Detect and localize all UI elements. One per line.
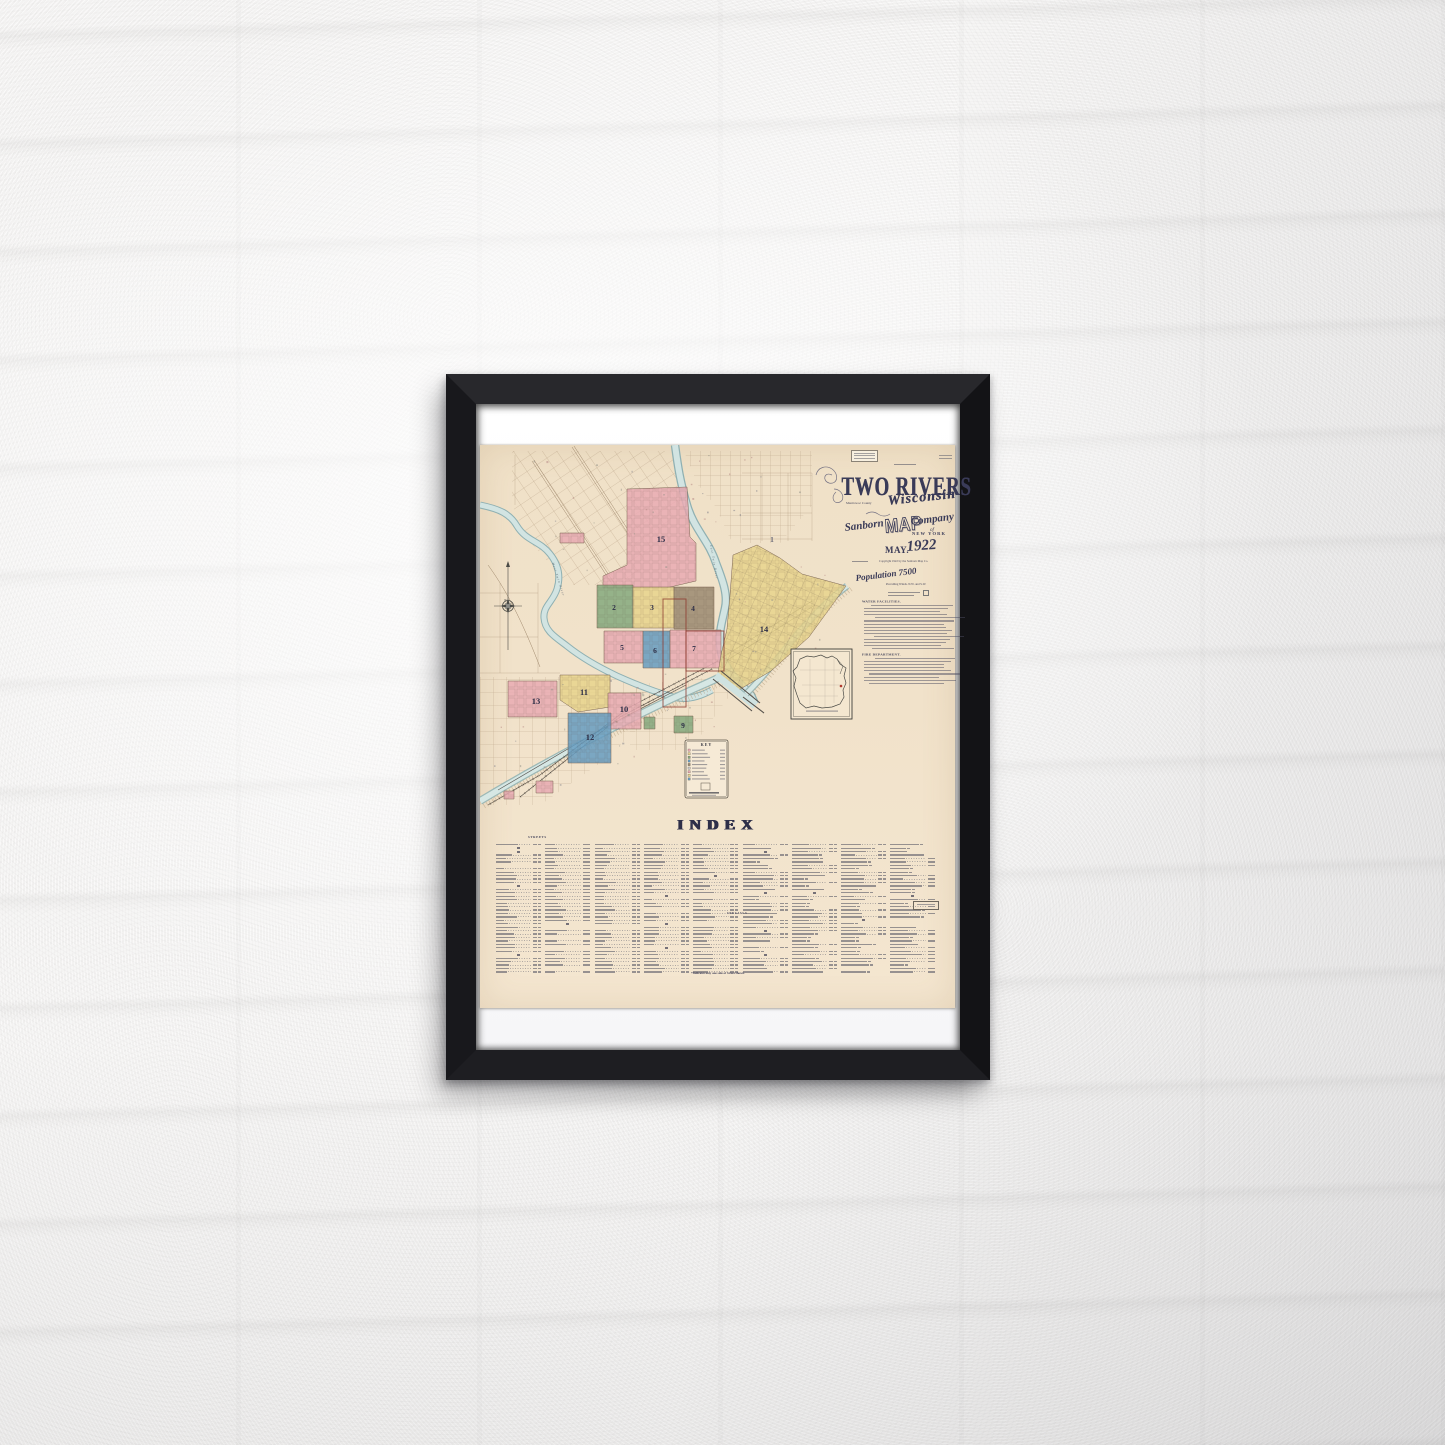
micro-text-segment (869, 865, 872, 866)
micro-text-segment (533, 868, 537, 869)
micro-text-segment (860, 910, 876, 911)
micro-text-segment (686, 872, 689, 873)
micro-text-segment (558, 848, 581, 849)
micro-text-segment (538, 964, 541, 965)
micro-text-segment (686, 851, 689, 852)
micro-text-segment (517, 954, 520, 956)
micro-text-segment (632, 944, 636, 945)
micro-text-segment (510, 965, 531, 966)
micro-text-segment (785, 896, 788, 897)
micro-text-segment (771, 855, 778, 856)
micro-text-segment (681, 875, 685, 876)
micro-text-segment (533, 882, 537, 883)
micro-text-segment (516, 944, 532, 945)
micro-text-segment (666, 861, 680, 862)
micro-text-segment (834, 848, 837, 849)
micro-text-segment (616, 971, 630, 972)
micro-text-segment (693, 851, 714, 852)
micro-text-segment (730, 903, 734, 904)
micro-text-segment (632, 971, 636, 972)
micro-text-segment (932, 865, 935, 866)
micro-text-segment (533, 964, 537, 965)
micro-text-segment (928, 913, 932, 914)
micro-text-segment (510, 889, 532, 890)
micro-text-segment (632, 923, 636, 924)
micro-text-segment (920, 844, 923, 845)
micro-text-segment (841, 896, 854, 897)
micro-text-segment (867, 971, 870, 972)
micro-text-segment (583, 933, 587, 934)
micro-text-segment (923, 885, 926, 886)
micro-text-segment (545, 851, 558, 852)
micro-text-segment (632, 868, 636, 869)
micro-text-segment (859, 930, 877, 931)
micro-text-segment (545, 889, 554, 890)
micro-text-segment (496, 868, 504, 869)
micro-text-segment (785, 933, 788, 934)
micro-text-segment (666, 968, 680, 969)
micro-text-segment (693, 906, 703, 907)
micro-text-segment (583, 844, 587, 845)
micro-text-segment (595, 899, 604, 900)
micro-text-segment (563, 879, 581, 880)
key-title: KEY (701, 742, 713, 747)
micro-text-segment (923, 954, 926, 955)
micro-text-segment (558, 934, 581, 935)
micro-text-segment (928, 958, 932, 959)
micro-text-segment (538, 968, 541, 969)
micro-text-segment (693, 865, 704, 866)
micro-text-segment (545, 868, 554, 869)
micro-text-segment (637, 868, 640, 869)
micro-text-segment (564, 855, 581, 856)
micro-text-segment (632, 872, 636, 873)
micro-text-segment (505, 868, 531, 869)
micro-text-segment (772, 910, 778, 911)
micro-text-segment (644, 875, 659, 876)
micro-text-segment (533, 889, 537, 890)
micro-text-segment (637, 916, 640, 917)
micro-text-segment (785, 909, 788, 910)
micro-text-line (871, 605, 952, 606)
micro-text-segment (632, 885, 636, 886)
micro-text-segment (910, 913, 926, 914)
micro-text-segment (834, 954, 837, 955)
micro-text-segment (890, 913, 908, 914)
micro-text-segment (743, 872, 756, 873)
micro-text-segment (780, 854, 784, 855)
micro-text-segment (595, 954, 607, 955)
micro-text-segment (743, 854, 770, 855)
micro-text-segment (864, 927, 876, 928)
micro-text-segment (637, 968, 640, 969)
micro-text-segment (743, 865, 765, 866)
micro-text-segment (664, 844, 679, 845)
micro-text-segment (655, 892, 680, 893)
micro-text-segment (857, 951, 860, 952)
micro-text-segment (686, 878, 689, 879)
micro-text-segment (654, 858, 679, 859)
micro-text-segment (595, 865, 608, 866)
micro-text-segment (693, 854, 708, 855)
micro-text-segment (583, 861, 587, 862)
micro-text-segment (496, 964, 509, 965)
micro-text-segment (663, 855, 680, 856)
micro-text-segment (883, 927, 886, 928)
micro-text-segment (509, 923, 531, 924)
micro-text-segment (883, 872, 886, 873)
micro-text-segment (785, 961, 788, 962)
micro-text-segment (813, 868, 827, 869)
micro-text-segment (792, 944, 819, 945)
micro-text-segment (508, 930, 532, 931)
micro-text-segment (841, 909, 859, 910)
micro-text-segment (792, 844, 809, 845)
micro-text-segment (587, 878, 590, 879)
micro-text-segment (841, 848, 871, 849)
micro-text-segment (730, 954, 734, 955)
micro-text-segment (538, 961, 541, 962)
micro-text-segment (905, 903, 908, 904)
micro-text-segment (878, 851, 882, 852)
micro-text-segment (883, 844, 886, 845)
micro-text-segment (890, 868, 909, 869)
micro-text-segment (792, 885, 805, 886)
micro-text-segment (545, 896, 556, 897)
micro-text-segment (765, 965, 778, 966)
micro-text-segment (533, 878, 537, 879)
micro-text-line (864, 639, 950, 640)
micro-text-segment (705, 865, 729, 866)
micro-text-segment (686, 937, 689, 938)
micro-text-segment (878, 958, 882, 959)
micro-text-segment (785, 903, 788, 904)
micro-text-segment (743, 899, 755, 900)
micro-text-segment (681, 868, 685, 869)
micro-text-segment (616, 889, 630, 890)
micro-text-segment (735, 961, 738, 962)
micro-text-segment (681, 885, 685, 886)
micro-text-segment (921, 854, 924, 855)
micro-text-segment (595, 930, 607, 931)
micro-text-segment (681, 872, 685, 873)
micro-text-segment (496, 909, 509, 910)
micro-text-segment (644, 851, 664, 852)
district-number-3: 3 (650, 603, 654, 612)
micro-text-segment (644, 964, 659, 965)
micro-text-segment (693, 872, 715, 873)
micro-text-segment (735, 865, 738, 866)
micro-text-segment (780, 933, 784, 934)
micro-text-segment (595, 944, 603, 945)
micro-text-segment (519, 844, 531, 845)
map-key-box: KEY (685, 740, 728, 798)
micro-text-segment (545, 954, 555, 955)
micro-text-segment (545, 961, 560, 962)
micro-text-segment (587, 909, 590, 910)
micro-text-segment (637, 865, 640, 866)
district-number-13: 13 (532, 696, 541, 706)
date-month: MAY. (885, 545, 909, 555)
micro-text-segment (761, 958, 778, 959)
micro-text-segment (764, 851, 767, 853)
micro-text-segment (792, 848, 822, 849)
micro-text-segment (909, 930, 926, 931)
micro-text-segment (583, 872, 587, 873)
micro-text-segment (735, 964, 738, 965)
micro-text-segment (496, 899, 517, 900)
micro-text-segment (583, 944, 587, 945)
micro-text-segment (730, 958, 734, 959)
micro-text-segment (533, 854, 537, 855)
micro-text-segment (538, 923, 541, 924)
micro-text-segment (883, 933, 886, 934)
micro-text-segment (715, 851, 729, 852)
micro-text-segment (686, 903, 689, 904)
micro-text-segment (657, 903, 679, 904)
micro-text-segment (817, 968, 827, 969)
micro-text-segment (829, 909, 833, 910)
micro-text-segment (666, 889, 679, 890)
micro-text-segment (883, 878, 886, 879)
micro-text-segment (595, 947, 611, 948)
micro-text-segment (637, 954, 640, 955)
micro-text-segment (906, 858, 925, 859)
micro-text-segment (565, 951, 580, 952)
water-works-note2 (888, 595, 914, 596)
micro-text-segment (561, 961, 581, 962)
micro-text-segment (587, 896, 590, 897)
micro-text-segment (587, 851, 590, 852)
micro-text-segment (632, 916, 636, 917)
micro-text-segment (583, 958, 587, 959)
micro-text-segment (814, 965, 827, 966)
micro-text-segment (681, 865, 685, 866)
micro-text-segment (824, 923, 827, 924)
micro-text-segment (657, 913, 679, 914)
micro-text-segment (538, 971, 541, 972)
micro-text-segment (829, 951, 833, 952)
micro-text-segment (878, 930, 882, 931)
micro-text-segment (496, 882, 514, 883)
micro-text-segment (780, 903, 784, 904)
micro-text-segment (841, 892, 869, 893)
micro-text-segment (644, 903, 656, 904)
micro-text-segment (907, 861, 926, 862)
micro-text-segment (730, 868, 734, 869)
micro-text-segment (693, 861, 704, 862)
micro-text-segment (735, 930, 738, 931)
micro-text-segment (761, 882, 778, 883)
micro-text-segment (890, 865, 911, 866)
micro-text-segment (780, 958, 784, 959)
micro-text-segment (792, 865, 808, 866)
micro-text-segment (660, 934, 679, 935)
micro-text-line (869, 683, 944, 684)
micro-text-segment (517, 847, 520, 849)
micro-text-segment (583, 916, 587, 917)
micro-text-segment (810, 899, 813, 900)
micro-text-segment (644, 940, 656, 941)
micro-text-segment (780, 909, 784, 910)
micro-text-segment (883, 930, 886, 931)
micro-text-segment (538, 930, 541, 931)
micro-text-segment (743, 882, 760, 883)
micro-text-segment (533, 913, 537, 914)
micro-text-segment (757, 861, 760, 862)
micro-text-segment (632, 896, 636, 897)
micro-text-segment (792, 964, 813, 965)
micro-text-segment (767, 940, 770, 941)
micro-text-segment (496, 927, 518, 928)
micro-text-segment (496, 854, 512, 855)
micro-text-segment (735, 927, 738, 928)
micro-text-segment (644, 916, 660, 917)
micro-text-segment (545, 885, 557, 886)
micro-text-segment (743, 844, 755, 845)
micro-text-segment (637, 854, 640, 855)
water-works-note (888, 592, 920, 593)
micro-text-segment (928, 961, 932, 962)
micro-text-segment (730, 892, 734, 893)
micro-text-segment (693, 916, 714, 917)
micro-text-segment (841, 868, 855, 869)
micro-text-segment (545, 848, 557, 849)
micro-text-segment (644, 971, 662, 972)
micro-text-segment (743, 920, 767, 921)
micro-text-segment (813, 892, 816, 894)
micro-text-segment (567, 910, 581, 911)
micro-text-segment (686, 920, 689, 921)
micro-text-segment (808, 896, 828, 897)
micro-text-segment (644, 872, 658, 873)
micro-text-segment (496, 947, 515, 948)
micro-text-segment (735, 947, 738, 948)
micro-text-segment (595, 961, 612, 962)
micro-text-segment (587, 889, 590, 890)
micro-text-segment (760, 947, 778, 948)
micro-text-segment (773, 923, 778, 924)
micro-text-segment (587, 882, 590, 883)
micro-text-segment (644, 844, 663, 845)
micro-text-segment (743, 903, 770, 904)
micro-text-segment (792, 872, 821, 873)
micro-text-segment (785, 872, 788, 873)
micro-text-segment (587, 930, 590, 931)
micro-text-segment (508, 971, 531, 972)
micro-text-segment (538, 951, 541, 952)
micro-text-segment (555, 858, 580, 859)
micro-text-segment (686, 861, 689, 862)
micro-text-segment (829, 913, 833, 914)
micro-text-segment (821, 889, 824, 890)
micro-text-segment (912, 951, 925, 952)
winds-note: Prevailing Winds. N.W. and S.W. (886, 583, 926, 586)
micro-text-segment (686, 865, 689, 866)
micro-text-segment (496, 968, 509, 969)
micro-text-segment (665, 895, 668, 897)
micro-text-segment (785, 875, 788, 876)
micro-text-segment (841, 954, 859, 955)
micro-text-segment (545, 933, 557, 934)
micro-text-segment (730, 909, 734, 910)
micro-text-segment (587, 940, 590, 941)
micro-text-segment (583, 878, 587, 879)
micro-text-segment (730, 920, 734, 921)
micro-text-segment (820, 861, 823, 862)
micro-text-segment (644, 848, 660, 849)
micro-text-segment (819, 930, 827, 931)
micro-text-segment (583, 903, 587, 904)
index-column (841, 843, 886, 974)
micro-text-segment (533, 920, 537, 921)
micro-text-segment (780, 961, 784, 962)
micro-text-segment (863, 916, 877, 917)
micro-text-segment (712, 848, 729, 849)
micro-text-segment (538, 906, 541, 907)
micro-text-line (872, 648, 954, 649)
micro-text-segment (910, 937, 913, 938)
micro-text-segment (644, 878, 659, 879)
micro-text-segment (841, 961, 867, 962)
micro-text-segment (878, 909, 882, 910)
micro-text-segment (644, 858, 653, 859)
micro-text-segment (890, 944, 914, 945)
micro-text-segment (595, 958, 605, 959)
micro-text-segment (637, 903, 640, 904)
micro-text-segment (867, 858, 877, 859)
micro-text-segment (878, 858, 882, 859)
micro-text-segment (613, 968, 630, 969)
micro-text-segment (583, 913, 587, 914)
micro-text-segment (615, 844, 630, 845)
micro-text-segment (681, 961, 685, 962)
micro-text-segment (878, 882, 882, 883)
micro-text-segment (841, 964, 869, 965)
micro-text-segment (772, 934, 778, 935)
micro-text-segment (516, 892, 532, 893)
wisconsin-inset-map (791, 649, 852, 719)
micro-text-segment (928, 865, 932, 866)
micro-text-segment (686, 951, 689, 952)
micro-text-segment (756, 872, 778, 873)
micro-text-segment (809, 865, 828, 866)
micro-text-segment (932, 971, 935, 972)
micro-text-segment (632, 844, 636, 845)
micro-text-segment (780, 872, 784, 873)
micro-text-segment (513, 951, 531, 952)
micro-text-segment (705, 937, 728, 938)
micro-text-segment (496, 944, 515, 945)
micro-text-segment (538, 861, 541, 862)
micro-text-segment (730, 933, 734, 934)
micro-text-segment (595, 875, 607, 876)
micro-text-segment (587, 951, 590, 952)
micro-text-segment (785, 920, 788, 921)
micro-text-segment (659, 872, 679, 873)
micro-text-segment (564, 899, 580, 900)
micro-text-segment (809, 851, 827, 852)
micro-text-segment (785, 958, 788, 959)
micro-text-segment (714, 954, 728, 955)
micro-text-segment (662, 868, 680, 869)
micro-text-segment (686, 944, 689, 945)
micro-text-segment (538, 933, 541, 934)
micro-text-segment (756, 899, 759, 900)
micro-text-segment (785, 885, 788, 886)
micro-text-segment (764, 885, 778, 886)
micro-text-segment (867, 851, 877, 852)
